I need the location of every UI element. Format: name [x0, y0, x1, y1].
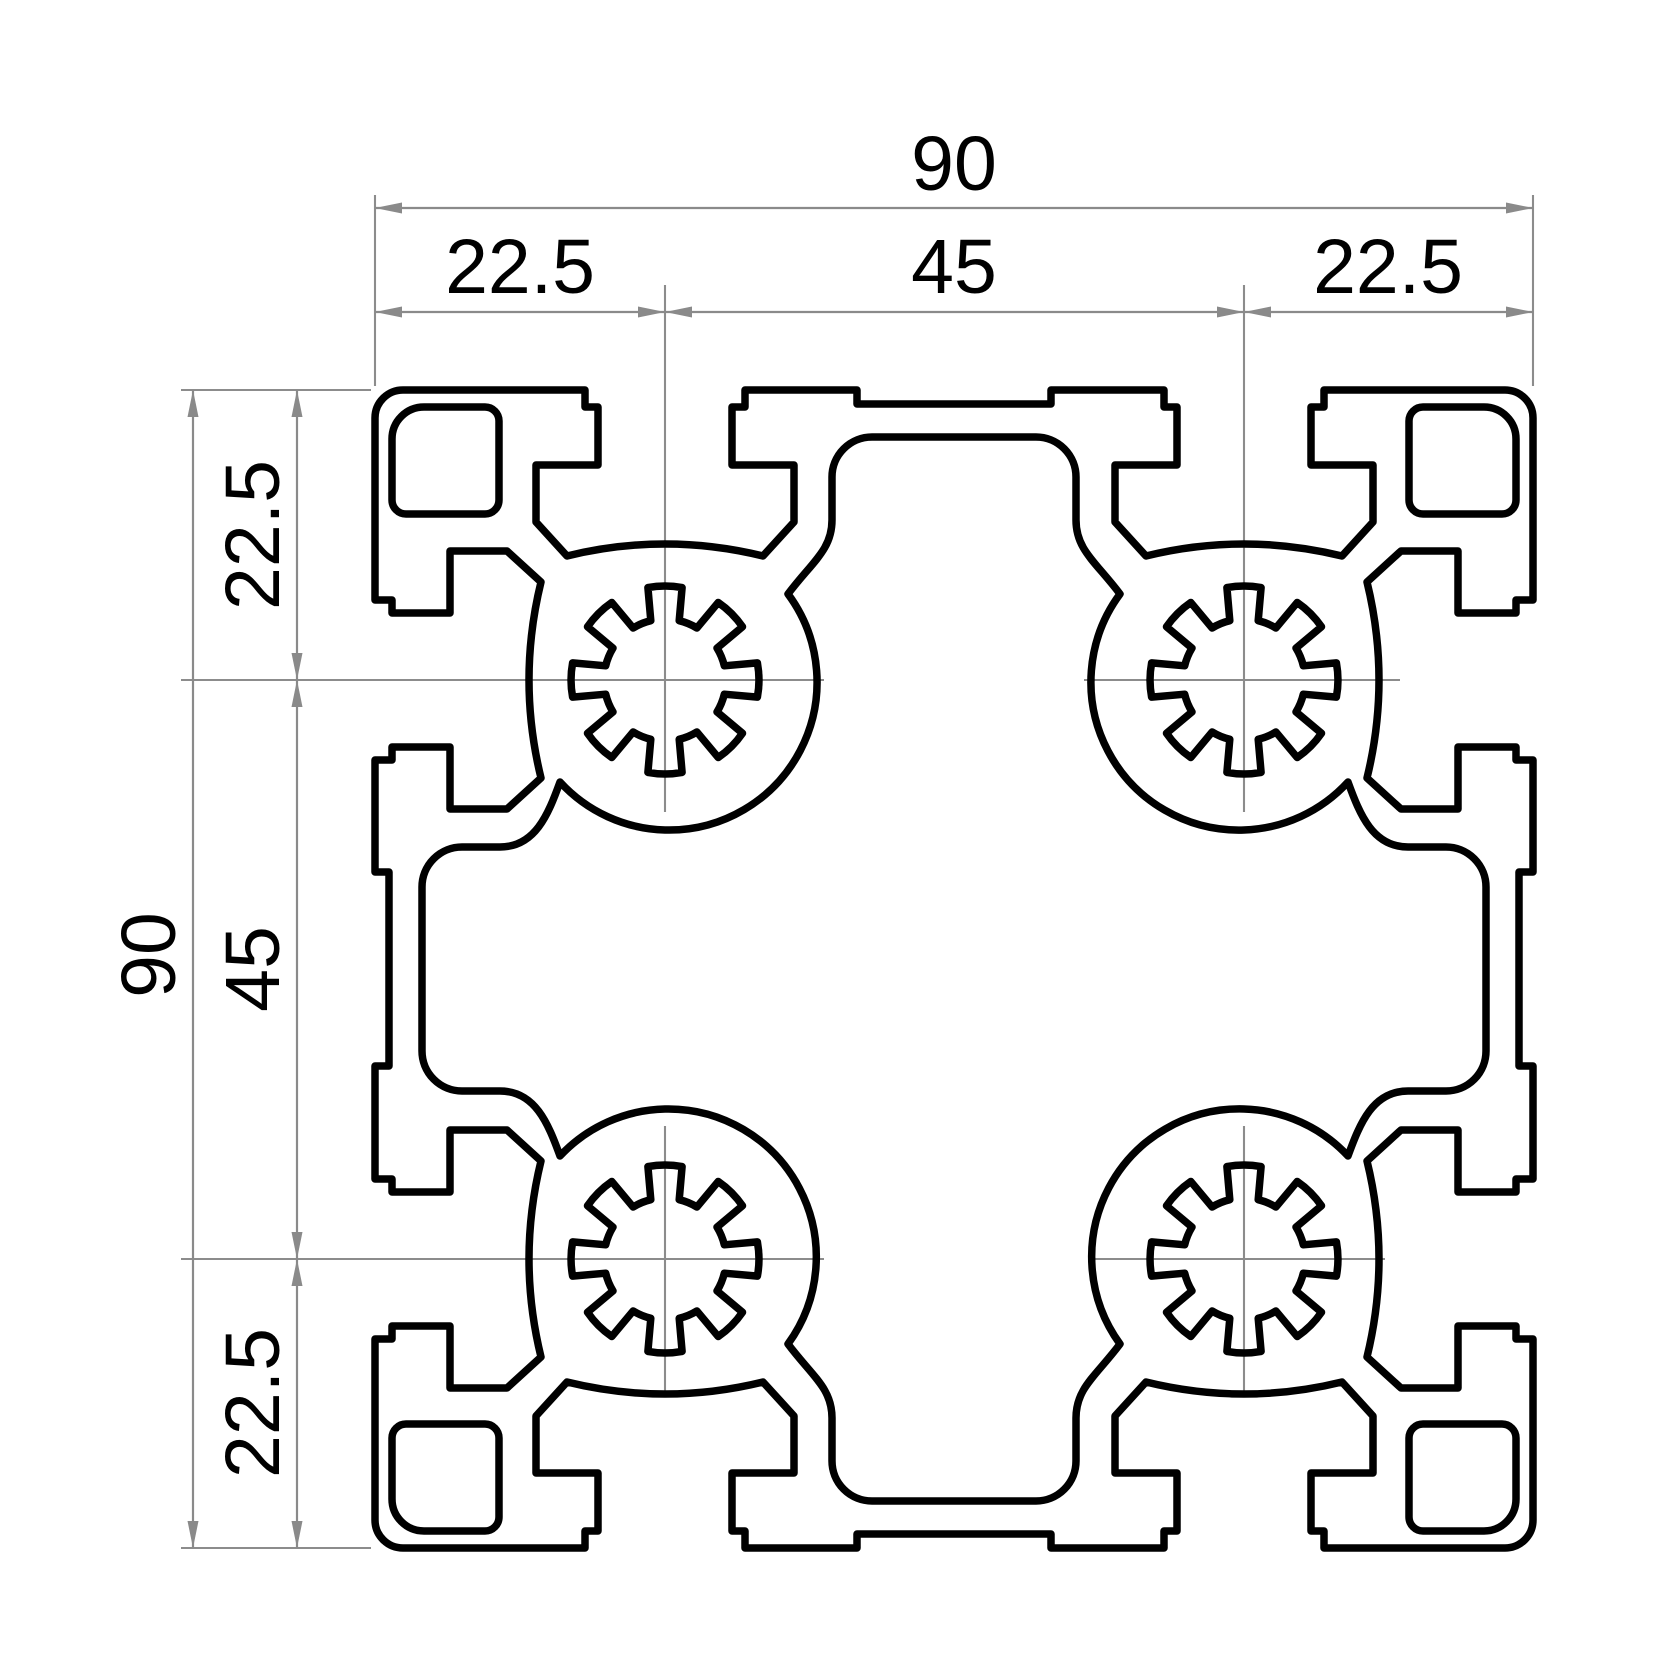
- dim-label-left-top: 22.5: [210, 460, 296, 610]
- corner-hole-top-left: [392, 407, 499, 514]
- central-cross-cavity: [422, 437, 1486, 1501]
- profile-outer-contour: [375, 390, 1533, 1548]
- dim-label-left-middle: 45: [210, 926, 296, 1012]
- dim-label-left-total: 90: [106, 912, 192, 998]
- dimension-chain: [193, 208, 1533, 1548]
- dim-label-top-right: 22.5: [1313, 224, 1463, 310]
- dim-label-left-bottom: 22.5: [210, 1328, 296, 1478]
- dim-label-top-total: 90: [911, 121, 997, 207]
- dim-label-top-left: 22.5: [445, 224, 595, 310]
- dimension-labels: 90 22.5 45 22.5 90 22.5 45 22.5: [106, 121, 1463, 1478]
- dim-label-top-middle: 45: [911, 224, 997, 310]
- technical-drawing: 90 22.5 45 22.5 90 22.5 45 22.5: [0, 0, 1667, 1667]
- corner-hole-bottom-right: [1409, 1424, 1516, 1531]
- corner-hole-top-right: [1409, 407, 1516, 514]
- corner-hole-bottom-left: [392, 1424, 499, 1531]
- drawing-canvas: 90 22.5 45 22.5 90 22.5 45 22.5: [0, 0, 1667, 1667]
- profile-cross-section: [375, 390, 1533, 1548]
